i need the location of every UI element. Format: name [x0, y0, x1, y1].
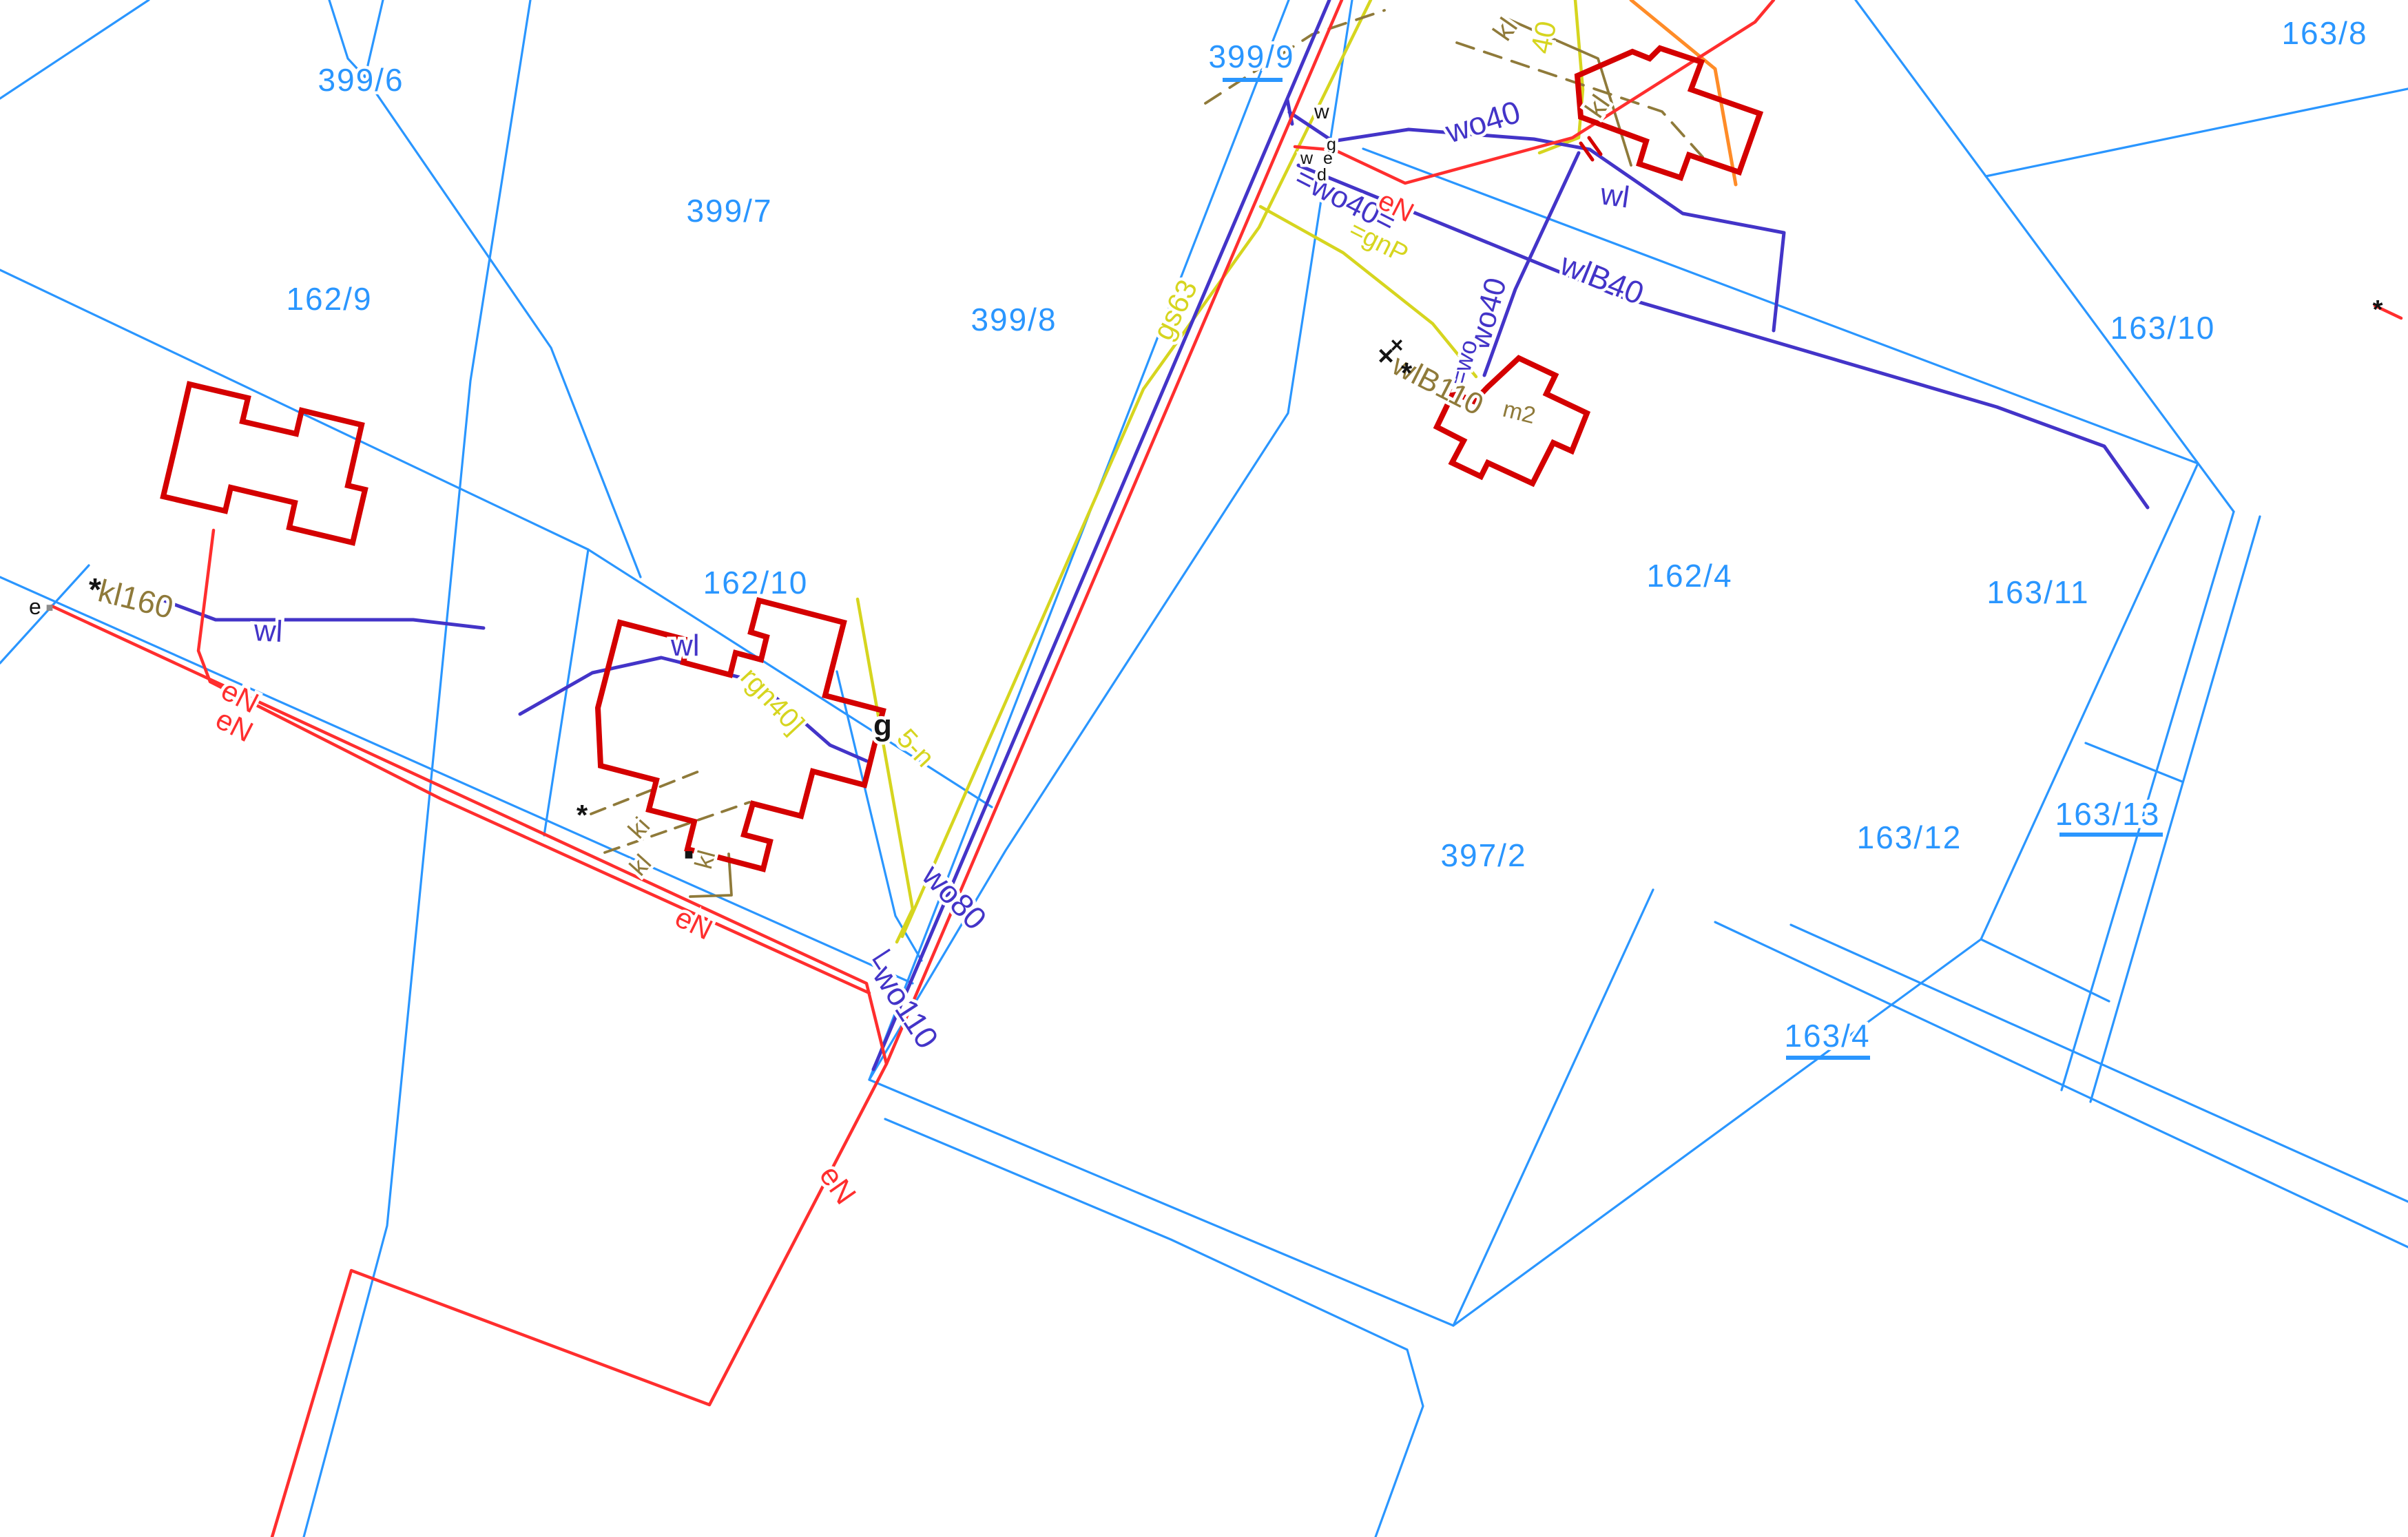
parcel-label-162-4: 162/4 — [1646, 558, 1732, 594]
map-symbol-marker-2: * — [1401, 357, 1413, 389]
utility-label-wl-20: wl — [252, 614, 283, 649]
utility-label-wl-21: wl — [670, 629, 700, 662]
utility-label-w-32: w — [1300, 149, 1314, 168]
parcel-label-162-10: 162/10 — [703, 565, 809, 600]
parcel-label-163-4: 163/4 — [1784, 1018, 1870, 1054]
cadastral-map-svg: 399/6399/7399/8399/9163/8163/10162/9162/… — [0, 0, 2408, 1537]
parcel-label-399-9: 399/9 — [1208, 39, 1294, 74]
map-symbol-marker-3: × — [1391, 333, 1404, 357]
utility-label-wl-6: wl — [1598, 177, 1632, 214]
utility-label-40-28: 40 — [1524, 18, 1563, 56]
parcel-label-397-2: 397/2 — [1440, 837, 1526, 873]
utility-label-d-33: d — [1317, 165, 1327, 185]
parcel-label-399-8: 399/8 — [971, 302, 1057, 337]
map-background — [0, 0, 2408, 1537]
map-symbol-marker-7: * — [2373, 295, 2383, 324]
parcel-label-163-10: 163/10 — [2110, 310, 2216, 346]
utility-label-w-29: w — [1314, 101, 1329, 123]
utility-label-e-34: e — [29, 594, 41, 619]
map-view: 399/6399/7399/8399/9163/8163/10162/9162/… — [0, 0, 2408, 1537]
parcel-label-399-6: 399/6 — [318, 62, 404, 98]
map-symbol-marker-5: * — [577, 799, 588, 831]
parcel-label-163-8: 163/8 — [2281, 15, 2367, 51]
parcel-label-163-12: 163/12 — [1857, 819, 1962, 855]
map-symbol-marker-6: ■ — [46, 600, 54, 614]
parcel-label-162-9: 162/9 — [286, 281, 372, 317]
utility-label-g-13: g — [873, 709, 892, 742]
parcel-label-163-11: 163/11 — [1986, 574, 2089, 610]
map-symbol-marker-4: ■ — [684, 846, 693, 863]
parcel-label-399-7: 399/7 — [686, 193, 772, 229]
map-symbol-marker-0: * — [89, 572, 101, 607]
parcel-label-163-13: 163/13 — [2055, 796, 2161, 832]
